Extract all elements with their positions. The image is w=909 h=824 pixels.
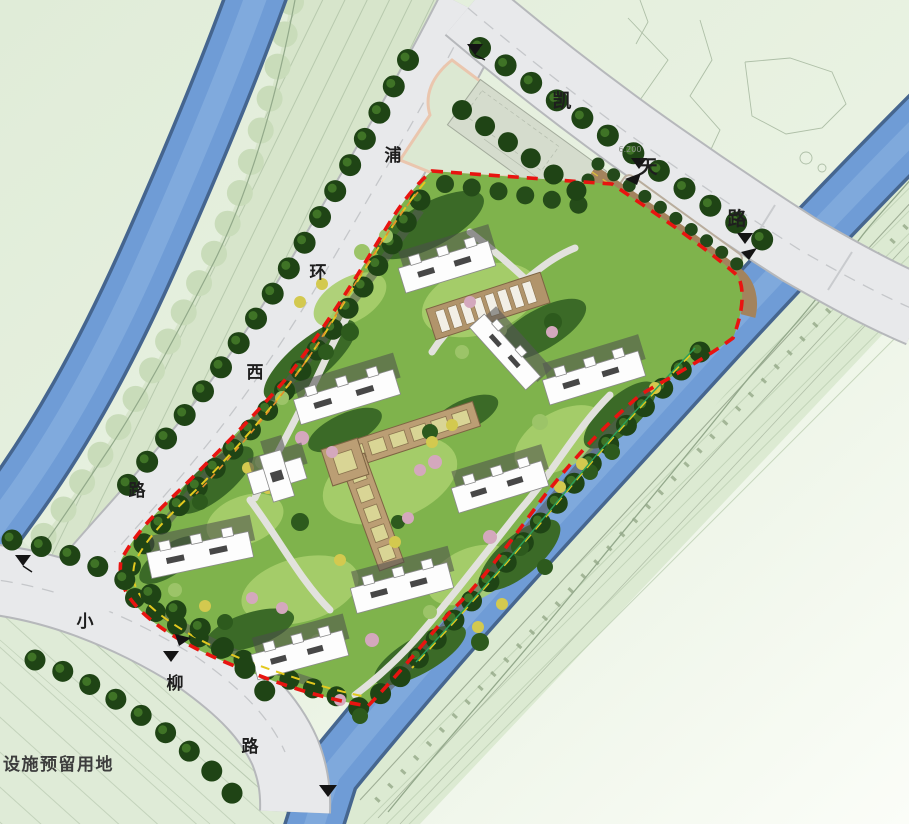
road-label-xiaoliu-2: 柳 bbox=[167, 673, 184, 694]
reserved-parcel-label: 设施预留用地 bbox=[3, 754, 114, 775]
road-label-kaitian-2: 天 bbox=[638, 156, 658, 178]
road-label-kaitian-1: 凯 bbox=[552, 90, 571, 112]
road-label-kaitian-3: 路 bbox=[727, 207, 747, 230]
road-label-xiaoliu-3: 路 bbox=[242, 736, 260, 757]
elevation-label: 6.200 bbox=[619, 145, 642, 154]
road-label-puhuanxi-4: 路 bbox=[129, 480, 147, 501]
road-label-puhuanxi-3: 西 bbox=[247, 363, 264, 383]
road-label-xiaoliu-1: 小 bbox=[77, 612, 94, 632]
road-label-puhuanxi-1: 浦 bbox=[385, 145, 402, 166]
master-plan-drawing: 凯 天 路 6.200 浦 环 西 路 小 柳 路 设施预留用地 bbox=[0, 0, 909, 824]
site-plan-canvas: 凯 天 路 6.200 浦 环 西 路 小 柳 路 设施预留用地 bbox=[0, 0, 909, 824]
road-label-puhuanxi-2: 环 bbox=[310, 263, 327, 283]
